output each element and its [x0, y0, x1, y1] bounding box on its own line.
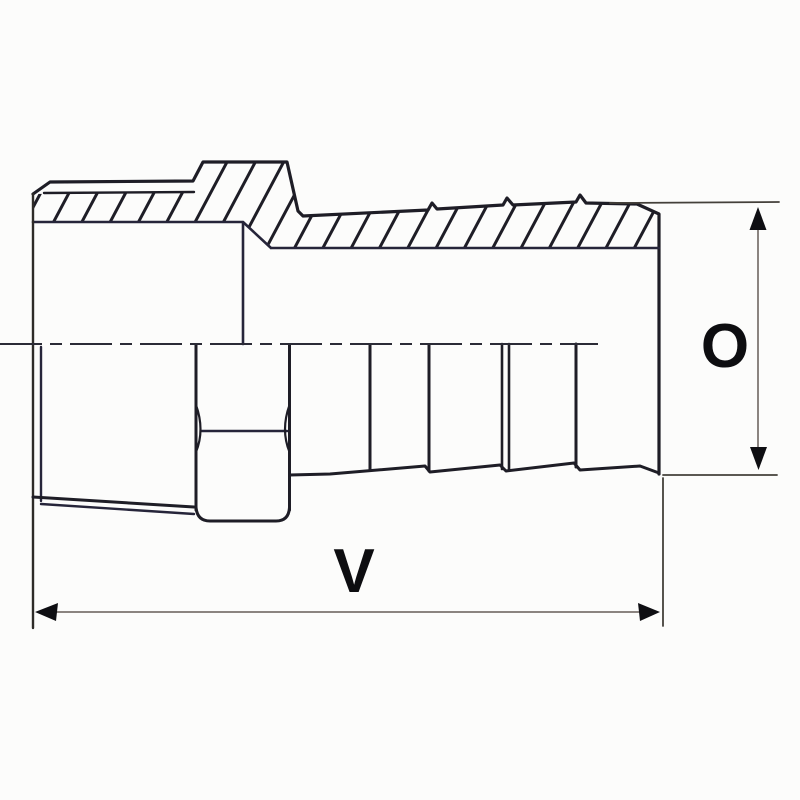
v-arrowhead-right-icon	[638, 603, 660, 621]
v-dimension-label: V	[333, 537, 374, 606]
fitting-technical-drawing: V O	[0, 0, 800, 800]
barb-bottom-profile	[290, 463, 660, 475]
barb-section	[290, 344, 660, 475]
o-extension-line-top	[610, 202, 779, 203]
section-hatch-fill	[33, 162, 659, 248]
section-upper-half	[33, 162, 659, 474]
o-arrowhead-bottom-icon	[750, 447, 767, 470]
thread-root-line-top	[44, 192, 194, 193]
hex-bottom-flat	[196, 507, 290, 521]
dimension-v: V	[35, 478, 663, 626]
drawing-page: V O	[0, 0, 800, 800]
o-arrowhead-top-icon	[750, 207, 767, 230]
v-arrowhead-left-icon	[35, 603, 58, 621]
hex-section	[196, 345, 290, 521]
o-dimension-label: O	[701, 312, 749, 381]
